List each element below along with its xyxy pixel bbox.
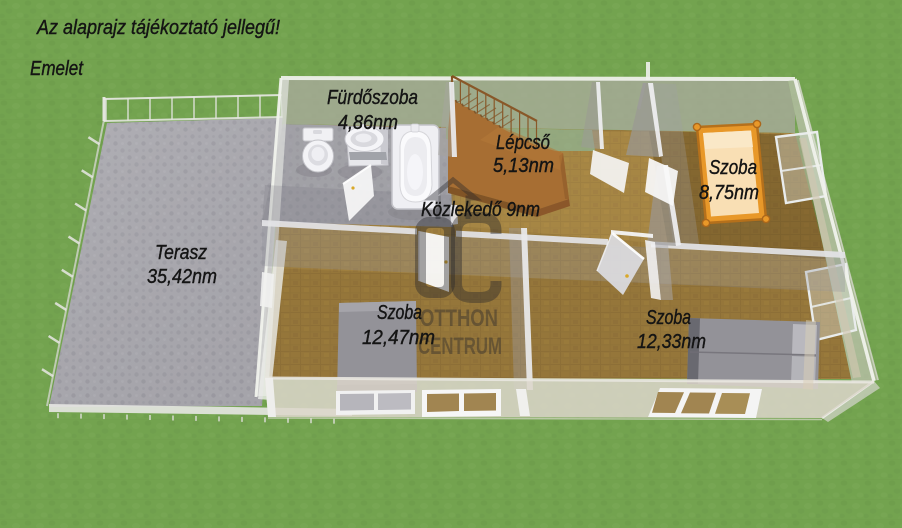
svg-text:8,75nm: 8,75nm: [699, 182, 759, 204]
svg-text:12,33nm: 12,33nm: [637, 331, 706, 353]
svg-text:35,42nm: 35,42nm: [147, 266, 217, 288]
svg-text:Szoba: Szoba: [377, 302, 422, 324]
svg-text:Szoba: Szoba: [709, 157, 757, 179]
svg-text:Szoba: Szoba: [646, 307, 691, 329]
svg-text:5,13nm: 5,13nm: [493, 155, 554, 177]
svg-text:Közlekedő 9nm: Közlekedő 9nm: [421, 199, 540, 221]
svg-text:4,86nm: 4,86nm: [338, 112, 398, 134]
svg-text:12,47nm: 12,47nm: [362, 327, 435, 349]
svg-text:Terasz: Terasz: [155, 242, 207, 264]
svg-text:Fürdőszoba: Fürdőszoba: [327, 87, 418, 109]
svg-text:Az alaprajz tájékoztató jelleg: Az alaprajz tájékoztató jellegű!: [36, 17, 280, 39]
svg-text:Emelet: Emelet: [30, 58, 84, 80]
svg-text:Lépcső: Lépcső: [496, 132, 551, 154]
